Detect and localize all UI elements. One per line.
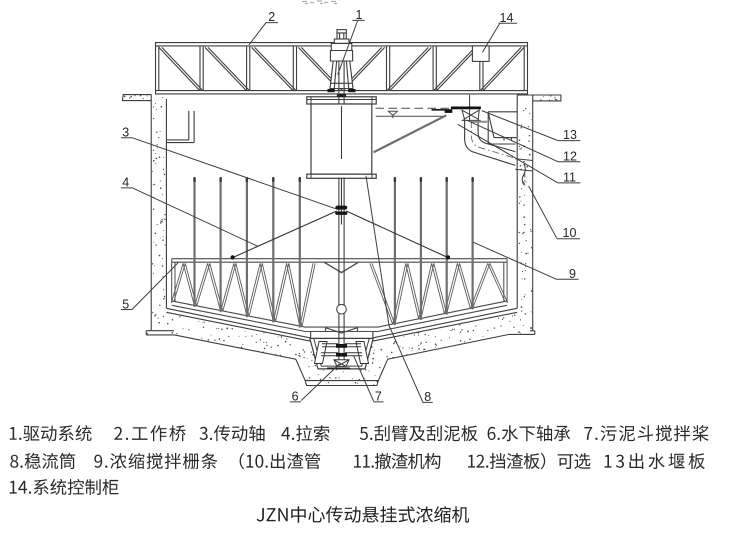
svg-text:2: 2 — [268, 10, 275, 24]
svg-text:7: 7 — [375, 390, 382, 404]
svg-text:5: 5 — [122, 297, 129, 311]
svg-text:13: 13 — [563, 128, 577, 142]
svg-text:12: 12 — [563, 150, 577, 164]
svg-text:14: 14 — [500, 11, 514, 25]
svg-text:11: 11 — [563, 171, 576, 185]
svg-text:4: 4 — [122, 176, 129, 190]
svg-text:8: 8 — [424, 390, 431, 404]
svg-text:3: 3 — [122, 126, 129, 140]
svg-text:6: 6 — [292, 390, 299, 404]
svg-text:10: 10 — [563, 226, 577, 240]
svg-text:1: 1 — [356, 8, 363, 22]
svg-text:9: 9 — [569, 267, 576, 281]
